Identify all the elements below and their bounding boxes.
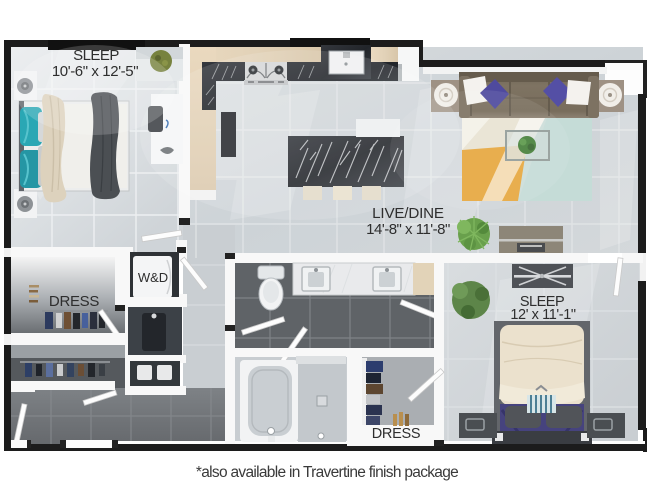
svg-text:14'-8" x 11'-8": 14'-8" x 11'-8" [366,221,450,238]
svg-text:*also available in Travertine: *also available in Travertine finish pac… [196,464,458,481]
svg-text:W&D: W&D [138,270,168,285]
svg-text:12' x 11'-1": 12' x 11'-1" [510,307,576,323]
svg-text:SLEEP: SLEEP [73,47,119,64]
svg-text:DRESS: DRESS [49,293,99,310]
svg-text:10'-6" x 12'-5": 10'-6" x 12'-5" [52,63,138,80]
svg-text:LIVE/DINE: LIVE/DINE [372,205,444,222]
svg-text:DRESS: DRESS [372,426,420,442]
